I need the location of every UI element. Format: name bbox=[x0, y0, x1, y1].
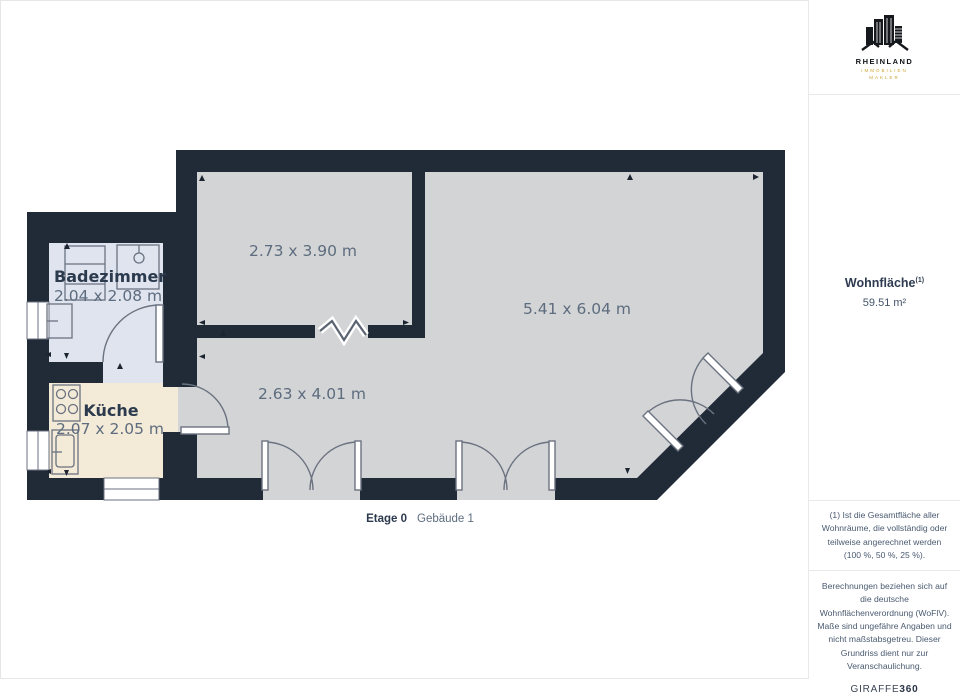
room-dim-main: 5.41 x 6.04 m bbox=[523, 300, 631, 318]
footnote-2-text: Berechnungen beziehen sich auf die deuts… bbox=[816, 580, 953, 673]
floor-label: Etage 0 bbox=[366, 513, 407, 525]
footnote-2: Berechnungen beziehen sich auf die deuts… bbox=[809, 570, 960, 679]
logo-subtitle-2: MAKLER bbox=[869, 75, 900, 80]
caption: Etage 0Gebäude 1 bbox=[330, 513, 510, 525]
giraffe360-brand: GIRAFFE360 bbox=[816, 684, 953, 695]
footnote-1-text: (1) Ist die Gesamtfläche aller Wohnräume… bbox=[818, 509, 951, 562]
room-dim-badezimmer: 2.04 x 2.08 m bbox=[54, 287, 162, 305]
patio-door-2-leaf-left bbox=[456, 441, 462, 490]
living-area-summary: Wohnfläche(1) 59.51 m² bbox=[809, 276, 960, 309]
room-dim-living: 2.63 x 4.01 m bbox=[258, 385, 366, 403]
patio-door-2-leaf-right bbox=[549, 441, 555, 490]
living-area-title: Wohnfläche(1) bbox=[809, 276, 960, 290]
room-dim-room1: 2.73 x 3.90 m bbox=[249, 242, 357, 260]
kitchen-door-leaf bbox=[181, 427, 229, 434]
footnote-marker: (1) bbox=[916, 277, 925, 284]
patio-door-1-leaf-left bbox=[262, 441, 268, 490]
sidebar: RHEINLAND IMMOBILIEN MAKLER Wohnfläche(1… bbox=[808, 0, 960, 679]
living-area-value: 59.51 m² bbox=[809, 297, 960, 309]
bathroom-doorway-floor bbox=[103, 362, 163, 383]
patio-door-1-leaf-right bbox=[355, 441, 361, 490]
floorplan-svg: Badezimmer 2.04 x 2.08 m Küche 2.07 x 2.… bbox=[0, 0, 808, 679]
bathroom-door-leaf bbox=[156, 305, 163, 362]
logo-name: RHEINLAND bbox=[856, 57, 914, 66]
patio-opening-1 bbox=[263, 478, 360, 500]
footnote-1: (1) Ist die Gesamtfläche aller Wohnräume… bbox=[809, 500, 960, 570]
agency-logo: RHEINLAND IMMOBILIEN MAKLER bbox=[809, 0, 960, 95]
room-dim-kueche: 2.07 x 2.05 m bbox=[56, 420, 164, 438]
room-name-badezimmer: Badezimmer bbox=[54, 267, 166, 286]
logo-subtitle-1: IMMOBILIEN bbox=[861, 68, 908, 73]
building-label: Gebäude 1 bbox=[417, 513, 474, 525]
room-name-kueche: Küche bbox=[83, 401, 138, 420]
building-logo-icon bbox=[861, 13, 909, 55]
